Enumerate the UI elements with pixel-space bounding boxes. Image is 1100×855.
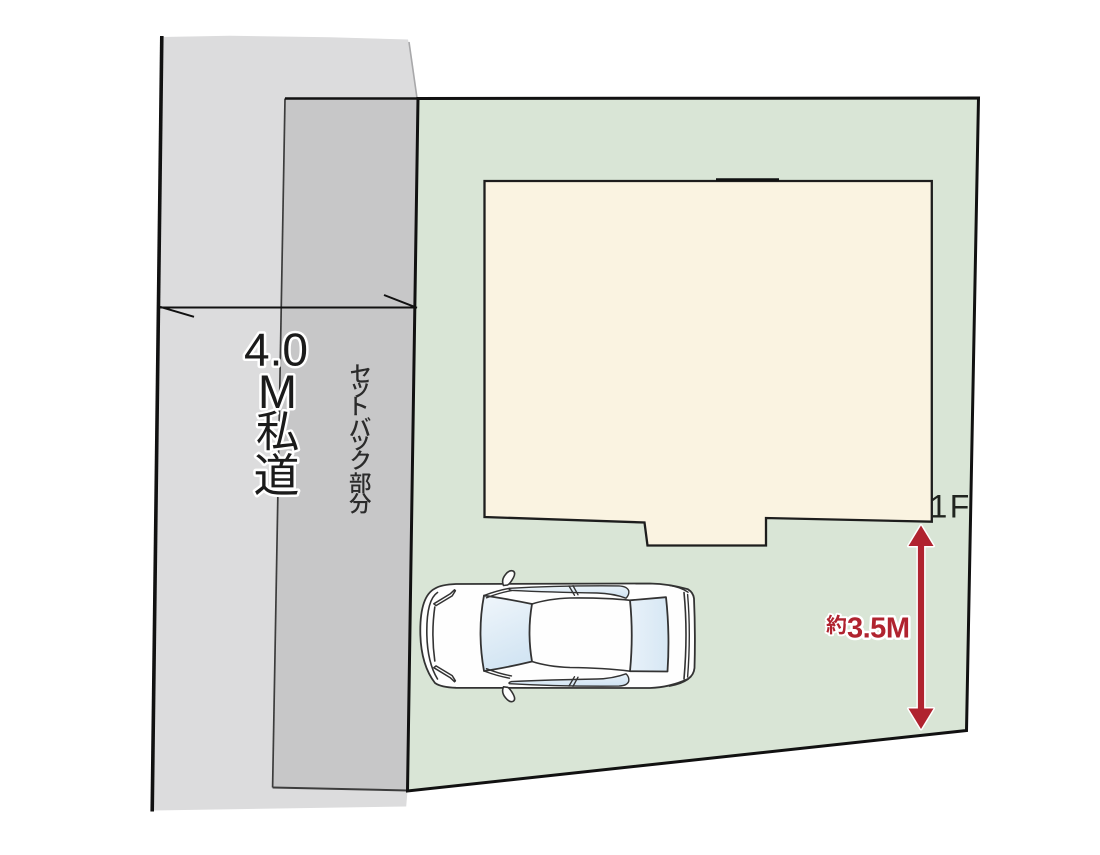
svg-text:M: M [258, 365, 297, 418]
svg-text:3.5M: 3.5M [847, 613, 909, 645]
svg-text:1F: 1F [930, 489, 972, 525]
